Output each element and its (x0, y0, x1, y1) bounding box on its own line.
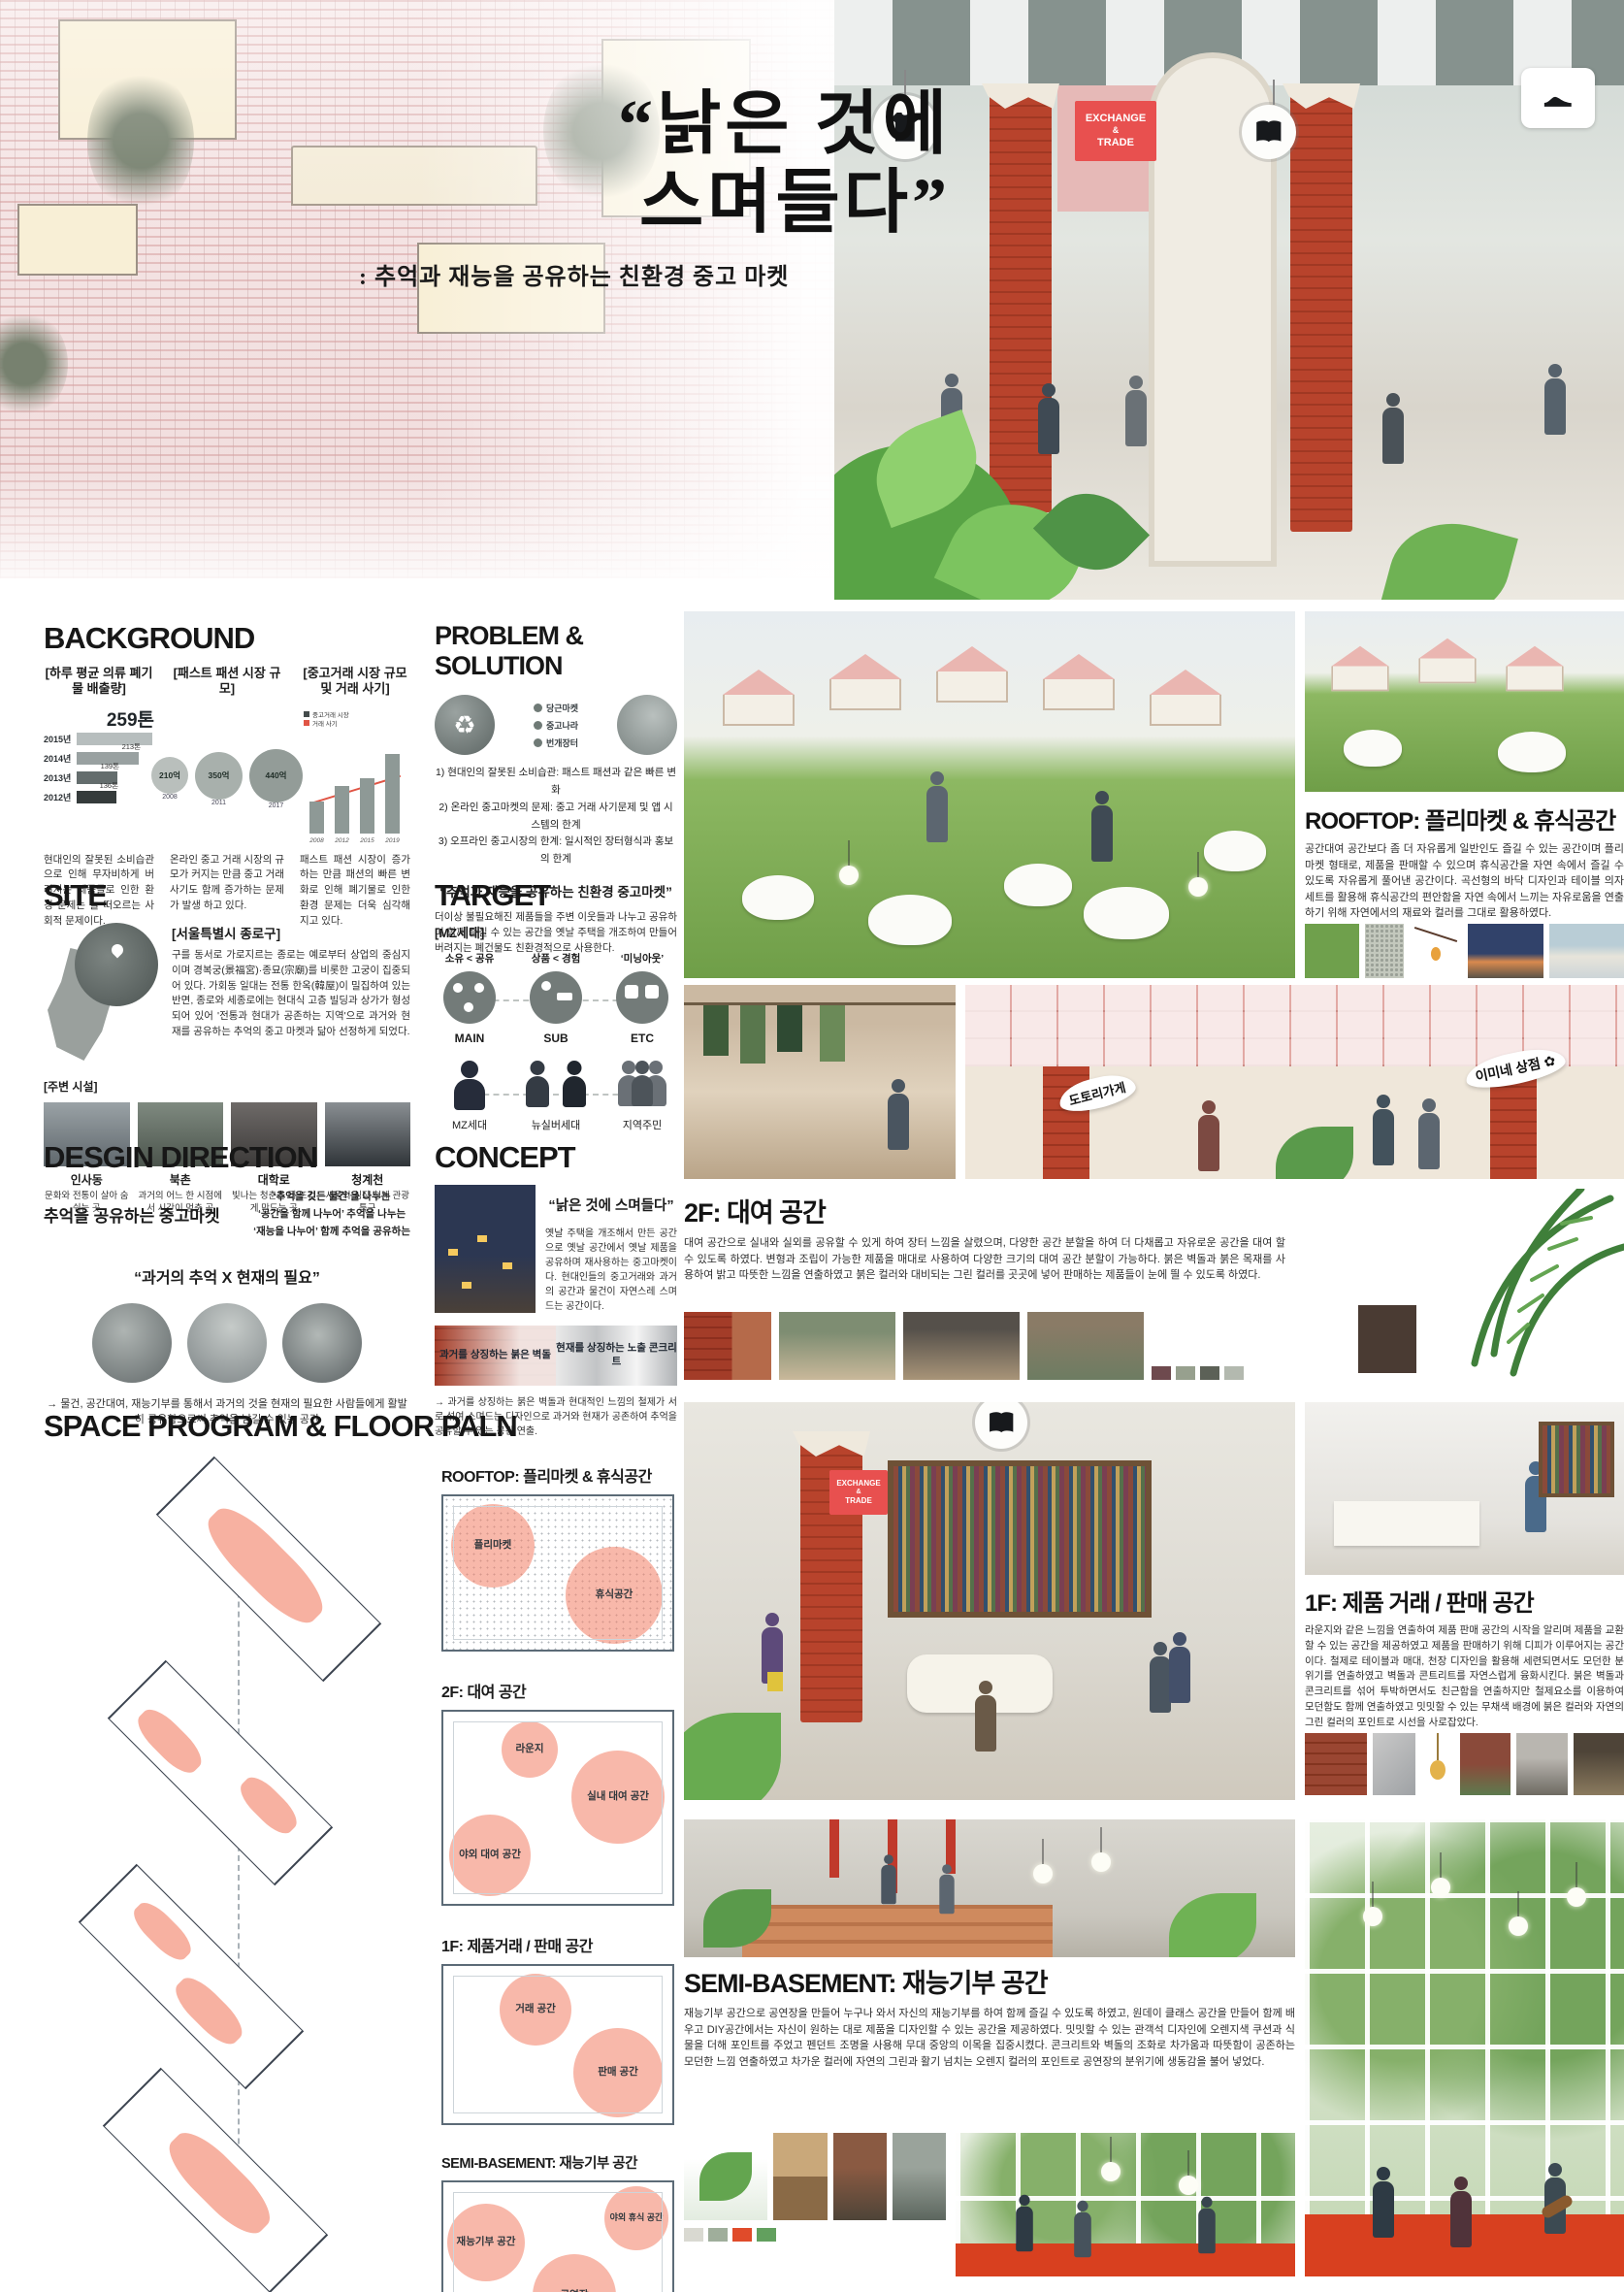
sign-line2: TRADE (1075, 137, 1156, 150)
elderly-woman-icon (526, 1061, 549, 1111)
f2-terrace-render (684, 985, 956, 1179)
f2-materials (684, 1312, 1285, 1380)
palette-chip (1152, 1366, 1171, 1380)
plan-rooftop: ROOFTOP: 플리마켓 & 휴식공간 플리마켓 휴식공간 (441, 1463, 674, 1652)
f2-main-render: 도토리가게 이미네 상점 ✿ (965, 985, 1624, 1179)
sneaker-icon (1536, 80, 1580, 115)
target-section: TARGET [MZ세대] 소유 < 공유 상품 < 경험 ‘미닝아웃’ MAI… (435, 878, 677, 1132)
background-title: BACKGROUND (44, 621, 410, 656)
stepped-seating (742, 1905, 1053, 1957)
design-direction-notes: ‘추억을 깃든 물건’을 나누는 ‘공간을 함께 나누어’ 추억을 나누는 ‘재… (253, 1189, 410, 1241)
f1-caption: 1F: 제품 거래 / 판매 공간 라운지와 같은 느낌을 연출하여 제품 판매… (1305, 1584, 1624, 1730)
bookshelf (888, 1460, 1152, 1618)
tier-main: MAIN (435, 1031, 504, 1045)
palm-leaves-illustration (1348, 1189, 1624, 1383)
book-icon (1252, 115, 1285, 148)
rooftop-ref-photo-lounge (1549, 924, 1624, 978)
f2-caption: 2F: 대여 공간 대여 공간으로 실내와 실외를 공유할 수 있게 하여 장터… (684, 1192, 1285, 1284)
palm-leaf-decor (1348, 1189, 1624, 1383)
foliage (1380, 508, 1518, 600)
app-item: 당근마켓 (534, 702, 578, 714)
fashion-chart-label: [패스트 패션 시장 규모] (170, 666, 284, 698)
sign-amp: & (1075, 125, 1156, 136)
sb-caption: SEMI-BASEMENT: 재능기부 공간 재능기부 공간으로 공연장을 만들… (684, 1962, 1295, 2070)
palette-chip (708, 2228, 728, 2242)
market-bar: 2012 (335, 786, 349, 834)
poster-subtitle: : 추억과 재능을 공유하는 친환경 중고 마켓 (320, 257, 951, 291)
market-chart-legend: 중고거래 시장 거래 사기 (304, 711, 349, 731)
concept-desc: 옛날 주택을 개조해서 만든 공간으로 옛날 공간에서 옛날 제품을 공유하며 … (545, 1227, 677, 1314)
f2-plan: 라운지 실내 대여 공간 야외 대여 공간 (441, 1710, 674, 1906)
f1-desc: 라운지와 같은 느낌을 연출하여 제품 판매 공간의 시작을 알리며 제품을 교… (1305, 1623, 1624, 1730)
target-title: TARGET (435, 878, 677, 913)
design-direction-section: DESGIN DIRECTION 추억을 공유하는 중고마켓 ‘추억을 깃든 물… (44, 1140, 410, 1428)
palette-chip (684, 2228, 703, 2242)
f2-brick-wood-collage (684, 1312, 771, 1380)
problem-item-3: 3) 오프라인 중고시장의 한계: 일시적인 장터형식과 홍보의 한계 (435, 834, 677, 868)
yellow-bag (767, 1672, 783, 1691)
exchange-trade-sign: EXCHANGE & TRADE (1075, 101, 1156, 161)
fashion-chart: 210억2008350억2011440억2017 (170, 707, 284, 841)
sb-title: SEMI-BASEMENT: 재능기부 공간 (684, 1962, 1295, 2000)
map-detail-circle (75, 923, 158, 1006)
plan-semi-basement: SEMI-BASEMENT: 재능기부 공간 재능기부 공간 공연장 야외 휴식… (441, 2152, 674, 2292)
market-bar: 2019 (385, 754, 400, 834)
space-program-section: SPACE PROGRAM & FLOOR PALN (44, 1409, 674, 1454)
f2-desc: 대여 공간으로 실내와 실외를 공유할 수 있게 하여 장터 느낌을 살렸으며,… (684, 1235, 1285, 1284)
market-chart-label: [중고거래 시장 규모 및 거래 사기] (300, 666, 410, 698)
market-photo (617, 695, 677, 755)
concept-quote: “낡은 것에 스며들다” (545, 1195, 677, 1215)
share-icon (443, 971, 496, 1024)
recycle-icon: ♻ (453, 710, 475, 740)
cabinet-photo (1358, 1305, 1416, 1373)
person-silhouette (1125, 390, 1147, 446)
trait-meaning-out: ‘미닝아웃’ (607, 951, 677, 1024)
sb-desc: 재능기부 공간으로 공연장을 만들어 누구나 와서 자신의 재능기부를 하여 함… (684, 2006, 1295, 2070)
rooftop-materials (1305, 924, 1624, 978)
sb-main-render-extension (956, 2133, 1295, 2276)
f2-palette (1152, 1312, 1285, 1380)
problem-item-2: 2) 온라인 중고마켓의 문제: 중고 거래 사기문제 및 앱 시스템의 한계 (435, 800, 677, 835)
group-person-icon (632, 1061, 653, 1111)
person-icon (453, 1061, 486, 1111)
flower-icon: ✿ (1543, 1052, 1557, 1069)
concept-title: CONCEPT (435, 1140, 677, 1175)
site-location-label: [서울특별시 종로구] (172, 923, 410, 942)
group-mz: MZ세대 (435, 1061, 504, 1132)
palette-chip (757, 2228, 776, 2242)
gravel-swatch (1365, 924, 1404, 978)
site-title: SITE (44, 878, 410, 913)
site-desc: 구를 동서로 가로지르는 종로는 예로부터 상업의 중심지이며 경복궁(景福宮)… (172, 948, 410, 1040)
person-silhouette (1544, 378, 1566, 435)
tier-sub: SUB (521, 1031, 591, 1045)
f1-exchange-sign: EXCHANGE & TRADE (829, 1470, 888, 1515)
book-icon (986, 1407, 1017, 1438)
book-sign (975, 1402, 1027, 1449)
trait-experience: 상품 < 경험 (521, 951, 591, 1024)
floor-plans-column: ROOFTOP: 플리마켓 & 휴식공간 플리마켓 휴식공간 2F: 대여 공간… (441, 1463, 674, 2292)
pendant-light-sketch (1421, 1733, 1454, 1795)
market-bar: 2008 (309, 802, 324, 834)
palette-chip (1176, 1366, 1195, 1380)
plan-2f: 2F: 대여 공간 라운지 실내 대여 공간 야외 대여 공간 (441, 1679, 674, 1906)
axon-rooftop-level (156, 1457, 381, 1682)
memory-objects-photo (92, 1303, 172, 1383)
poster-title-line1: “낡은 것에 (320, 85, 951, 164)
tier-etc: ETC (607, 1031, 677, 1045)
sb-main-render (1305, 1819, 1624, 2276)
rooftop-side-render (1305, 611, 1624, 792)
display-counter (1334, 1501, 1479, 1546)
f2-ref-photo-3 (1027, 1312, 1144, 1380)
f1-side-render (1305, 1402, 1624, 1575)
sb-ref-photo-2 (893, 2133, 946, 2220)
f2-title: 2F: 대여 공간 (684, 1192, 1285, 1229)
axon-connector (238, 1504, 240, 2242)
f1-ref-photo-3 (1574, 1733, 1624, 1795)
poster: EXCHANGE & TRADE “낡은 것에 스며들다” (0, 0, 1624, 2292)
sign-line1: EXCHANGE (1075, 113, 1156, 126)
design-direction-title: DESGIN DIRECTION (44, 1140, 410, 1175)
plan-1f: 1F: 제품거래 / 판매 공간 거래 공간 판매 공간 (441, 1933, 674, 2125)
person-silhouette (1382, 408, 1404, 464)
palette-chip (1200, 1366, 1219, 1380)
fashion-bubble: 350억 (195, 752, 243, 800)
experience-icon (530, 971, 582, 1024)
waste-chart: 259톤 2015년2014년213톤2013년139톤2012년136톤 (44, 707, 154, 841)
exposed-concrete-material: 현재를 상징하는 노출 콘크리트 (556, 1326, 677, 1386)
sb-plan: 재능기부 공간 공연장 야외 휴식 공간 (441, 2180, 674, 2292)
book-sign (1242, 105, 1296, 159)
f1-ref-photo-2 (1516, 1733, 1567, 1795)
meaning-out-icon (616, 971, 668, 1024)
red-brick-material: 과거를 상징하는 붉은 벽돌 (435, 1326, 556, 1386)
rooftop-title: ROOFTOP: 플리마켓 & 휴식공간 (1305, 802, 1624, 835)
bulb-icon (1431, 947, 1441, 961)
space-program-title: SPACE PROGRAM & FLOOR PALN (44, 1409, 674, 1444)
f1-materials (1305, 1733, 1624, 1795)
string-light-sketch (1410, 924, 1462, 978)
secondhand-apps: 당근마켓 중고나라 번개장터 (534, 702, 578, 749)
hero-interior-render: EXCHANGE & TRADE (834, 0, 1624, 600)
elderly-man-icon (563, 1061, 586, 1111)
waste-highlight-value: 259톤 (107, 705, 154, 732)
design-direction-quote: “과거의 추억 X 현재의 필요” (44, 1264, 410, 1288)
axon-basement-level (103, 2068, 328, 2292)
f1-main-render: EXCHANGE & TRADE (684, 1402, 1295, 1800)
waste-bar-row: 2012년136톤 (44, 791, 154, 803)
wood-swatches (773, 2133, 828, 2220)
rooftop-plan: 플리마켓 휴식공간 (441, 1494, 674, 1652)
problem-solution-title: PROBLEM & SOLUTION (435, 621, 677, 681)
palette-chip (732, 2228, 752, 2242)
key-handover-photo (187, 1303, 267, 1383)
sb-ref-photo-1 (833, 2133, 887, 2220)
f2-ref-photo-2 (903, 1312, 1020, 1380)
bulb-icon (1430, 1760, 1445, 1780)
design-direction-photos (44, 1303, 410, 1383)
group-newsilver: 뉴실버세대 (521, 1061, 591, 1132)
sb-amphitheater-render (684, 1819, 1295, 1957)
sb-materials (684, 2133, 946, 2276)
target-generation-label: [MZ세대] (435, 923, 677, 941)
waste-chart-label: [하루 평균 의류 폐기물 배출량] (44, 666, 154, 698)
rooftop-main-render (684, 611, 1295, 978)
concrete-swatch (1373, 1733, 1415, 1795)
trait-share: 소유 < 공유 (435, 951, 504, 1024)
fashion-bubble: 210억 (151, 757, 188, 794)
f1-title: 1F: 제품 거래 / 판매 공간 (1305, 1584, 1624, 1618)
brick-column (1290, 93, 1352, 532)
market-chart: 중고거래 시장 거래 사기 2008201220152019 (300, 707, 410, 841)
rooftop-caption: ROOFTOP: 플리마켓 & 휴식공간 공간대여 공간보다 좀 더 자유롭게 … (1305, 802, 1624, 922)
rooftop-desc: 공간대여 공간보다 좀 더 자유롭게 일반인도 즐길 수 있는 공간이며 플리마… (1305, 841, 1624, 922)
rooftop-ref-photo-night (1468, 924, 1543, 978)
sb-plant-render (684, 2133, 767, 2220)
poster-title-line2: 스며들다” (320, 164, 951, 243)
app-item: 중고나라 (534, 719, 578, 732)
f2-ref-photo-1 (779, 1312, 895, 1380)
group-residents: 지역주민 (607, 1061, 677, 1132)
axon-1f-level (79, 1864, 304, 2089)
site-map (44, 923, 158, 1066)
talent-share-photo (282, 1303, 362, 1383)
waste-bar-row: 2014년213톤 (44, 752, 154, 765)
sb-palette (684, 2220, 946, 2249)
recycle-photo: ♻ (435, 695, 495, 755)
concept-section: CONCEPT “낡은 것에 스며들다” 옛날 주택을 개조해서 만든 공간으로… (435, 1140, 677, 1439)
palette-chip (1224, 1366, 1244, 1380)
market-bar: 2015 (360, 778, 374, 834)
brick-swatch (1305, 1733, 1367, 1795)
title-block: “낡은 것에 스며들다” : 추억과 재능을 공유하는 친환경 중고 마켓 (320, 85, 951, 291)
grass-swatch (1305, 924, 1359, 978)
axonometric-exploded-view (44, 1465, 427, 2285)
site-nearby-label: [주변 시설] (44, 1078, 410, 1095)
f1-plan: 거래 공간 판매 공간 (441, 1964, 674, 2125)
person-silhouette (1038, 398, 1059, 454)
old-house-photo (435, 1185, 536, 1313)
axon-2f-level (108, 1660, 333, 1885)
app-item: 번개장터 (534, 737, 578, 749)
problem-item-1: 1) 현대인의 잘못된 소비습관: 패스트 패션과 같은 빠른 변화 (435, 765, 677, 800)
fashion-bubble: 440억 (249, 749, 303, 802)
shoe-sign (1521, 68, 1595, 128)
f1-ref-photo-1 (1460, 1733, 1510, 1795)
design-direction-phrase: 추억을 공유하는 중고마켓 (44, 1202, 220, 1227)
